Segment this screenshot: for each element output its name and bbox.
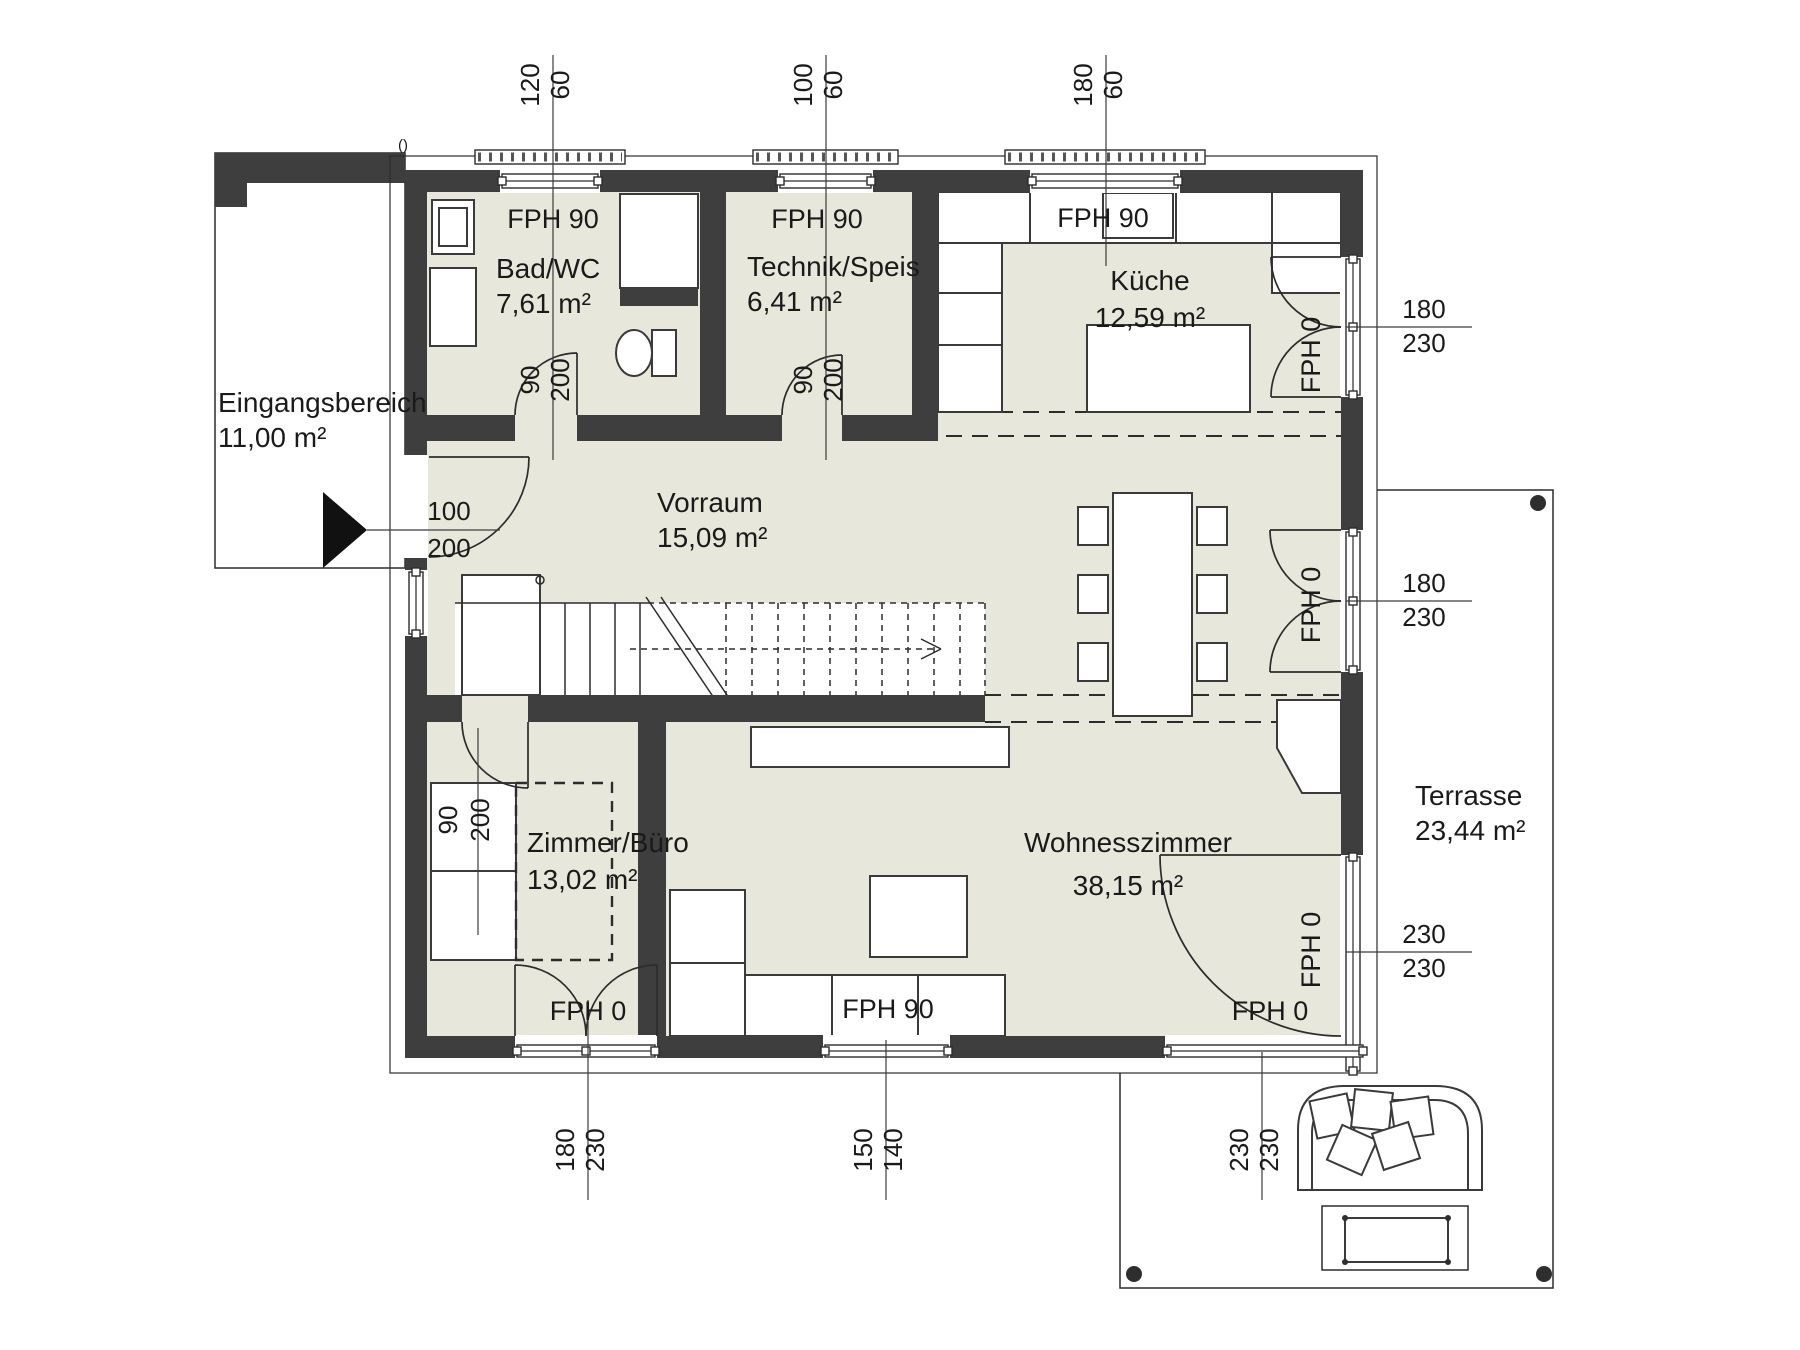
opening-label-bottom-1: FPH 0 xyxy=(550,996,627,1026)
dim-bottom-3-width: 230 xyxy=(1224,1128,1254,1171)
room-label-bad: Bad/WC xyxy=(496,253,600,284)
shutter-strips xyxy=(475,150,1205,164)
dining-table xyxy=(1113,493,1192,716)
dim-top-1-width: 120 xyxy=(515,63,545,106)
opening-label-bottom-3: FPH 0 xyxy=(1232,996,1309,1026)
room-area-terrasse: 23,44 m² xyxy=(1415,815,1526,846)
shower-stub-wall xyxy=(620,288,698,306)
dim-top-2-height: 60 xyxy=(818,71,848,100)
dim-bottom-1-height: 230 xyxy=(580,1128,610,1171)
opening-label-bottom-2: FPH 90 xyxy=(842,994,934,1024)
toilet-bowl xyxy=(616,330,652,376)
terrace-post-icon xyxy=(1536,1266,1552,1282)
sideboard xyxy=(751,727,1009,767)
dim-top-3-height: 60 xyxy=(1098,71,1128,100)
dim-top-1-height: 60 xyxy=(545,71,575,100)
dim-top-3-width: 180 xyxy=(1068,63,1098,106)
kitchen-corner-unit xyxy=(1272,243,1341,293)
wall-technik-kueche xyxy=(912,192,938,415)
chair xyxy=(1197,507,1227,545)
wall-bad-technik xyxy=(700,192,726,415)
opening-label-top-1: FPH 90 xyxy=(507,204,599,234)
corner-mark: () xyxy=(398,137,408,154)
chair xyxy=(1078,575,1108,613)
kitchen-counter-left xyxy=(938,243,1002,412)
opening-label-top-3: FPH 90 xyxy=(1057,203,1149,233)
dim-bottom-2-height: 140 xyxy=(878,1128,908,1171)
dim-bad-width: 90 xyxy=(515,366,545,395)
dim-right-2-height: 230 xyxy=(1402,602,1445,632)
wall-zimmer-wohnzimmer xyxy=(638,722,666,1036)
glazing-corner xyxy=(1163,1045,1367,1057)
dim-technik-height: 200 xyxy=(818,358,848,401)
entry-sidelight-window xyxy=(409,568,423,638)
wall-under-stairs xyxy=(528,695,985,722)
window-kueche xyxy=(1028,174,1182,188)
room-label-vorraum: Vorraum xyxy=(657,487,763,518)
room-label-kueche: Küche xyxy=(1110,265,1189,296)
shower xyxy=(620,194,698,288)
room-label-eingangsbereich: Eingangsbereich xyxy=(218,387,427,418)
dim-top-2-width: 100 xyxy=(788,63,818,106)
dim-bottom-1-width: 180 xyxy=(550,1128,580,1171)
dim-entry-height: 200 xyxy=(427,533,470,563)
dim-bottom-2-width: 150 xyxy=(848,1128,878,1171)
dim-bottom-3-height: 230 xyxy=(1254,1128,1284,1171)
entrance-area xyxy=(215,153,405,568)
room-area-eingangsbereich: 11,00 m² xyxy=(218,422,326,453)
room-area-bad: 7,61 m² xyxy=(496,288,591,319)
chair xyxy=(1078,643,1108,681)
dim-bad-height: 200 xyxy=(545,358,575,401)
chair xyxy=(1078,507,1108,545)
floor-plan-canvas: Eingangsbereich 11,00 m² Bad/WC 7,61 m² … xyxy=(0,0,1800,1350)
window-bad xyxy=(498,174,602,188)
glazing-wohn-door xyxy=(1346,853,1360,1075)
room-area-vorraum: 15,09 m² xyxy=(657,522,768,553)
outdoor-table xyxy=(1322,1206,1468,1270)
kitchen-island xyxy=(1087,325,1250,412)
terrace-furniture xyxy=(1298,1086,1482,1270)
room-area-zimmer: 13,02 m² xyxy=(527,864,638,895)
dim-zimmer-width: 90 xyxy=(433,806,463,835)
dim-entry-width: 100 xyxy=(427,496,470,526)
toilet-tank xyxy=(652,330,676,376)
dim-right-3-width: 230 xyxy=(1402,919,1445,949)
terrace-post-icon xyxy=(1530,495,1546,511)
glazing-zimmer-door xyxy=(513,1045,659,1057)
dim-technik-width: 90 xyxy=(788,366,818,395)
room-label-zimmer: Zimmer/Büro xyxy=(527,827,689,858)
terrace-post-icon xyxy=(1126,1266,1142,1282)
opening-label-right-1: FPH 0 xyxy=(1296,317,1326,394)
room-area-wohnzimmer: 38,15 m² xyxy=(1073,870,1184,901)
room-area-technik: 6,41 m² xyxy=(747,286,842,317)
bathtub xyxy=(430,268,476,346)
dim-right-2-width: 180 xyxy=(1402,568,1445,598)
room-label-wohnzimmer: Wohnesszimmer xyxy=(1024,827,1232,858)
room-label-technik: Technik/Speis xyxy=(747,251,920,282)
dim-right-3-height: 230 xyxy=(1402,953,1445,983)
opening-label-right-3: FPH 0 xyxy=(1296,912,1326,989)
chair xyxy=(1197,575,1227,613)
dim-right-1-width: 180 xyxy=(1402,294,1445,324)
room-label-terrasse: Terrasse xyxy=(1415,780,1522,811)
dim-zimmer-height: 200 xyxy=(465,798,495,841)
dim-right-1-height: 230 xyxy=(1402,328,1445,358)
opening-label-right-2: FPH 0 xyxy=(1296,567,1326,644)
chair xyxy=(1197,643,1227,681)
floor-plan: Eingangsbereich 11,00 m² Bad/WC 7,61 m² … xyxy=(0,0,1800,1350)
stair-landing xyxy=(462,575,540,695)
coffee-table xyxy=(870,876,967,957)
entrance-arrow-icon xyxy=(323,492,367,568)
opening-label-top-2: FPH 90 xyxy=(771,204,863,234)
room-area-kueche: 12,59 m² xyxy=(1095,302,1206,333)
